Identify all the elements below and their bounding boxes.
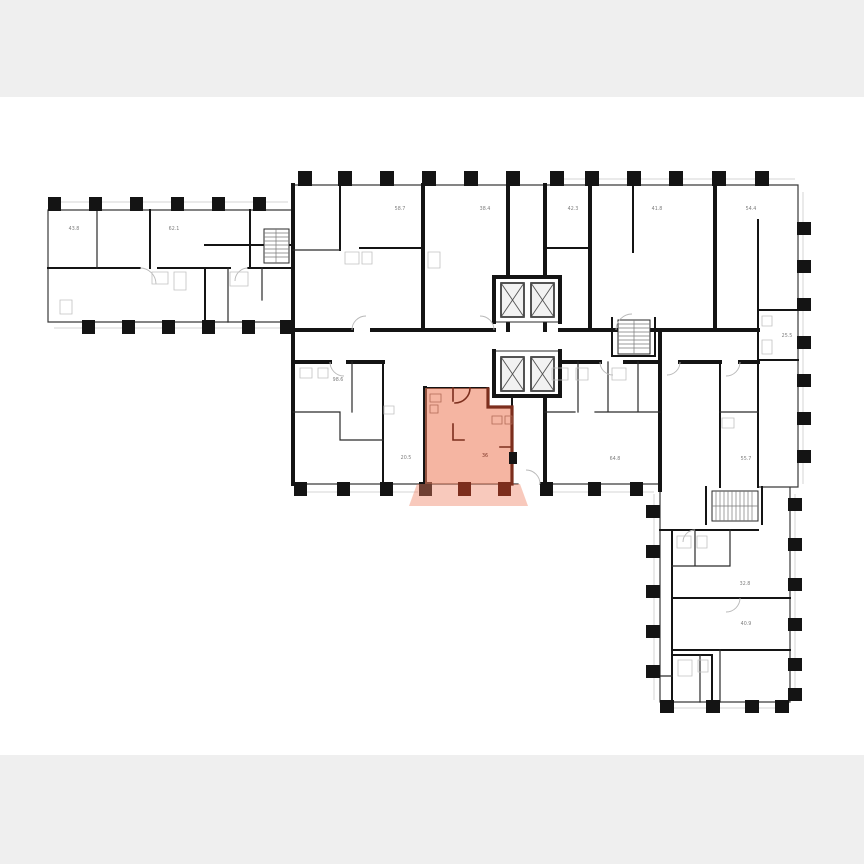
room-label: 98.6 — [333, 377, 344, 383]
highlighted-apartment[interactable]: 36 — [409, 388, 528, 506]
room-label: 55.7 — [741, 456, 752, 462]
room-label: 25.5 — [782, 333, 793, 339]
room-label: 58.7 — [395, 206, 406, 212]
highlight-right-pier — [509, 452, 517, 464]
fixture-hints — [60, 252, 772, 676]
room-label: 32.8 — [740, 581, 751, 587]
elevator-core — [494, 277, 560, 396]
room-label: 43.8 — [69, 226, 80, 232]
structural-walls-thick — [293, 185, 758, 490]
room-label: 41.8 — [652, 206, 663, 212]
floor-plan-canvas: 36 43.8 62.1 58.7 38.4 42.3 41.8 54.4 25… — [0, 0, 864, 864]
room-label: 62.1 — [169, 226, 180, 232]
room-label: 40.9 — [741, 621, 752, 627]
letterbox-bottom — [0, 755, 864, 864]
room-label: 64.8 — [610, 456, 621, 462]
room-label: 20.5 — [401, 455, 412, 461]
room-label: 38.4 — [480, 206, 491, 212]
room-label: 54.4 — [746, 206, 757, 212]
staircase-icon — [264, 229, 289, 263]
highlight-area-label: 36 — [482, 453, 488, 459]
room-label: 42.3 — [568, 206, 579, 212]
letterbox-top — [0, 0, 864, 97]
